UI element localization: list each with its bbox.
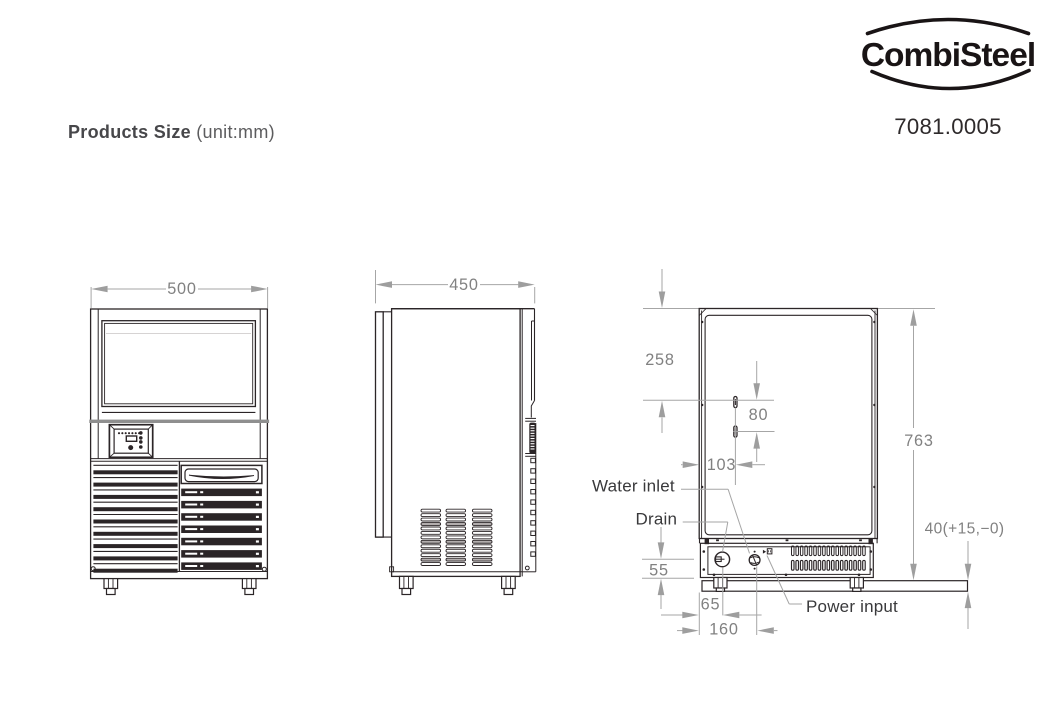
svg-text:Water inlet: Water inlet (592, 477, 675, 496)
svg-text:Power input: Power input (806, 597, 898, 616)
svg-text:80: 80 (749, 406, 769, 424)
svg-text:65: 65 (701, 596, 721, 614)
svg-text:CombiSteel: CombiSteel (861, 37, 1035, 74)
svg-text:55: 55 (649, 562, 669, 580)
svg-text:40(+15,−0): 40(+15,−0) (925, 521, 1005, 538)
svg-text:103: 103 (707, 456, 737, 474)
svg-text:160: 160 (709, 621, 739, 639)
svg-text:Drain: Drain (636, 510, 678, 529)
svg-text:Products Size (unit:mm): Products Size (unit:mm) (68, 122, 275, 142)
svg-text:500: 500 (167, 280, 197, 298)
svg-text:763: 763 (904, 432, 934, 450)
svg-text:450: 450 (449, 276, 479, 294)
svg-text:7081.0005: 7081.0005 (894, 114, 1002, 139)
svg-text:258: 258 (645, 351, 675, 369)
